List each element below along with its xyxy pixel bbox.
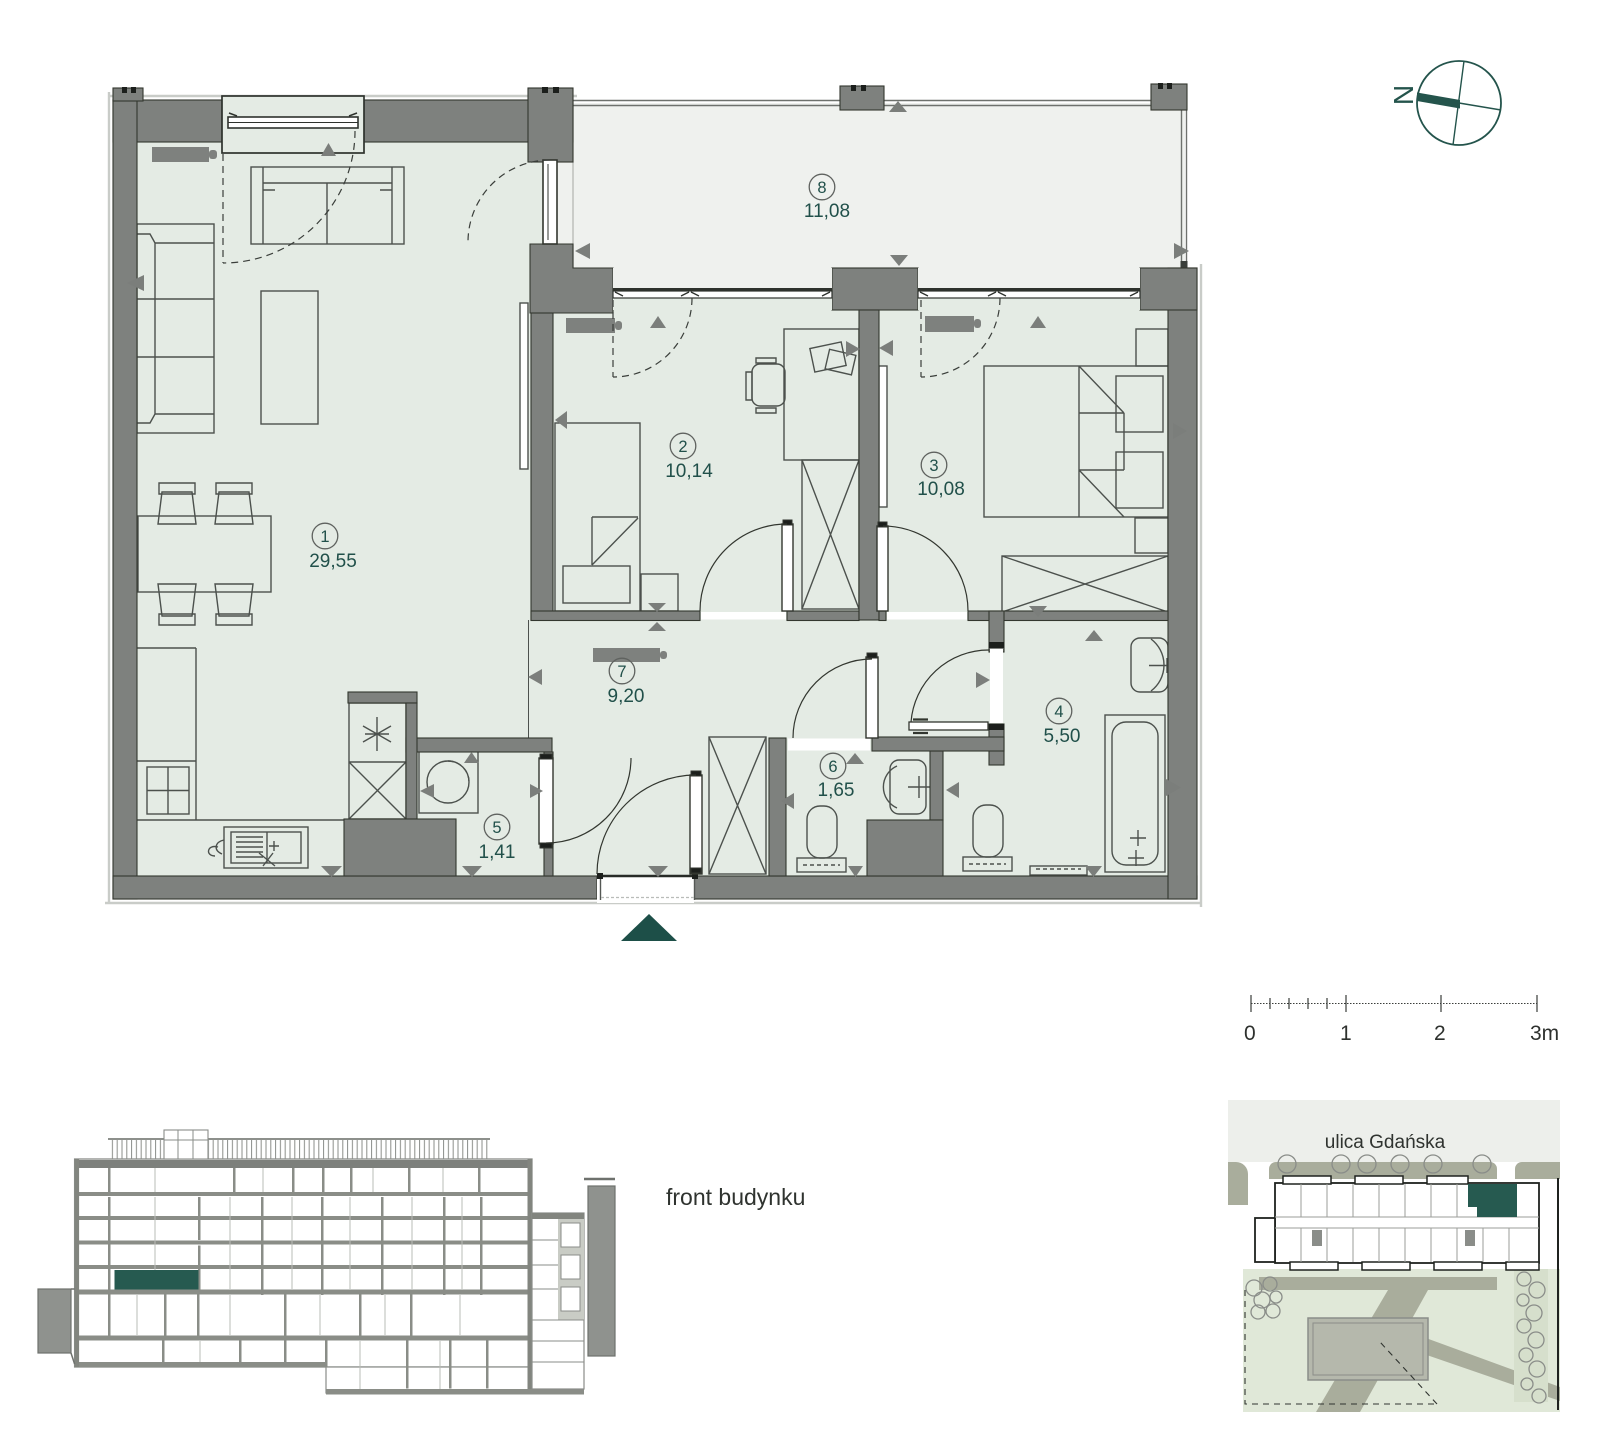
svg-text:9,20: 9,20 — [608, 686, 645, 707]
svg-text:2: 2 — [678, 438, 687, 456]
svg-text:10,14: 10,14 — [665, 461, 713, 482]
svg-text:3: 3 — [929, 457, 938, 475]
svg-text:ulica Gdańska: ulica Gdańska — [1325, 1132, 1446, 1153]
svg-text:7: 7 — [617, 663, 626, 681]
svg-text:4: 4 — [1054, 703, 1063, 721]
svg-text:11,08: 11,08 — [804, 201, 850, 222]
svg-text:8: 8 — [817, 179, 826, 197]
svg-text:6: 6 — [828, 758, 837, 776]
svg-text:0: 0 — [1244, 1022, 1256, 1045]
svg-text:3m: 3m — [1530, 1022, 1559, 1045]
svg-text:29,55: 29,55 — [309, 551, 357, 572]
svg-text:1,65: 1,65 — [818, 780, 855, 801]
svg-text:front budynku: front budynku — [666, 1184, 805, 1210]
svg-text:1: 1 — [320, 528, 329, 546]
svg-text:1,41: 1,41 — [479, 842, 516, 863]
svg-text:5: 5 — [492, 819, 501, 837]
svg-text:5,50: 5,50 — [1044, 726, 1081, 747]
svg-text:2: 2 — [1434, 1022, 1446, 1045]
svg-text:1: 1 — [1340, 1022, 1352, 1045]
svg-text:N: N — [1388, 85, 1419, 105]
svg-text:10,08: 10,08 — [917, 479, 965, 500]
